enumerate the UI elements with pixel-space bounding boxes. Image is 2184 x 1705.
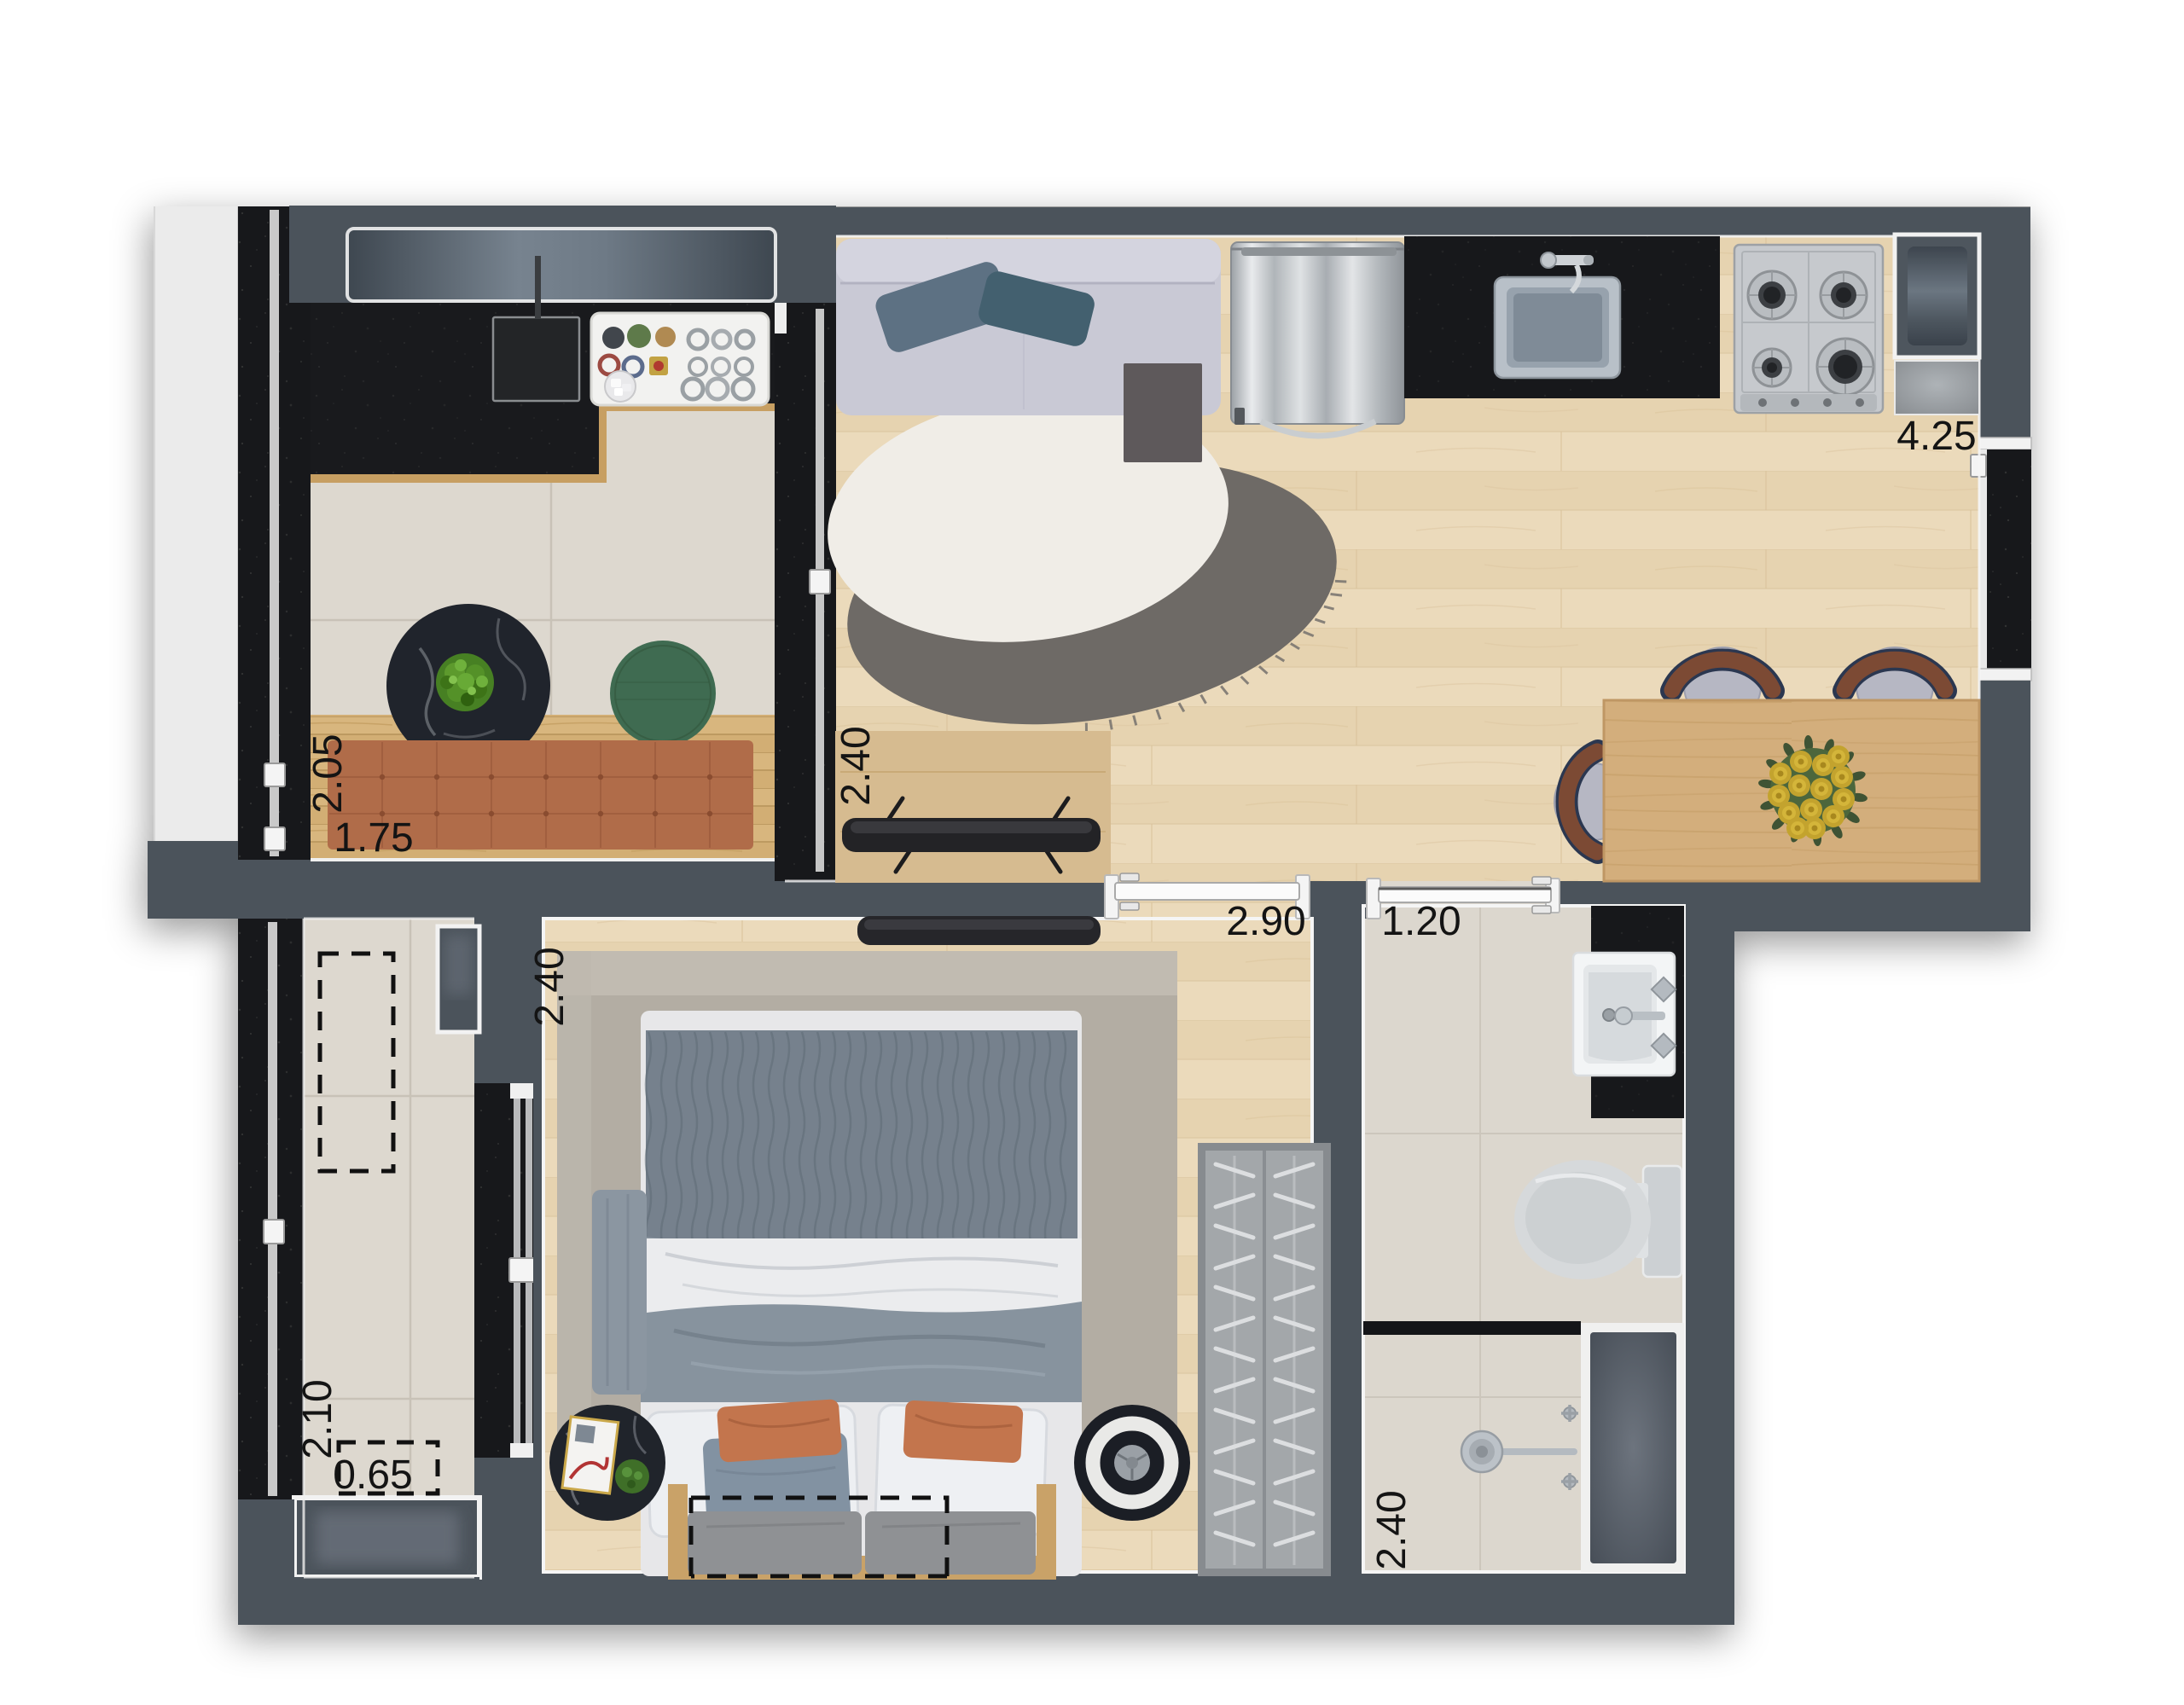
svg-text:1.75: 1.75: [334, 815, 413, 861]
svg-text:0.65: 0.65: [333, 1453, 412, 1498]
svg-text:2.40: 2.40: [527, 947, 572, 1026]
svg-text:2.05: 2.05: [305, 734, 351, 813]
svg-text:2.90: 2.90: [1226, 899, 1305, 944]
svg-text:4.25: 4.25: [1896, 414, 1976, 459]
svg-text:2.40: 2.40: [834, 726, 879, 805]
svg-text:2.40: 2.40: [1369, 1490, 1414, 1569]
svg-text:2.10: 2.10: [295, 1379, 340, 1459]
svg-text:1.20: 1.20: [1381, 899, 1461, 944]
